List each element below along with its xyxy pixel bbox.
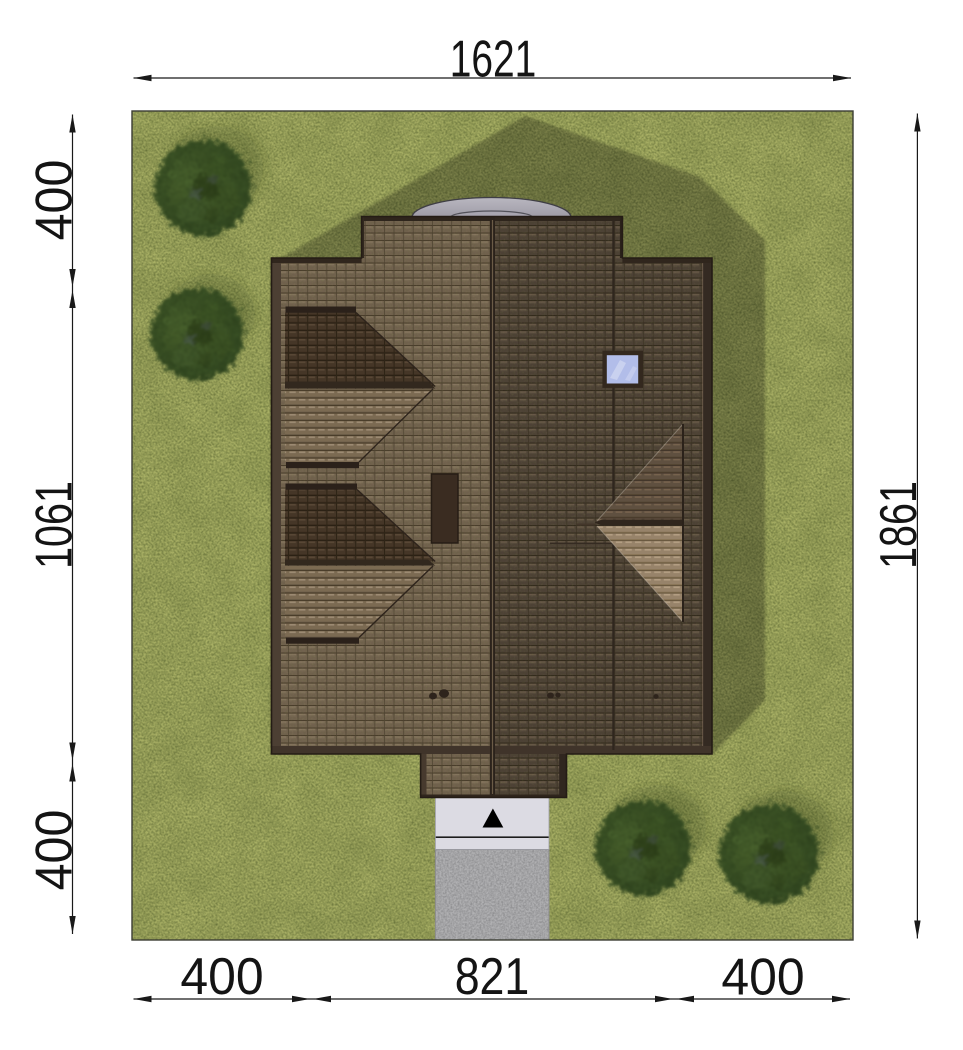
- svg-text:1621: 1621: [450, 29, 537, 88]
- svg-text:400: 400: [25, 810, 83, 891]
- svg-text:1061: 1061: [24, 481, 83, 569]
- svg-text:821: 821: [455, 948, 530, 1006]
- svg-text:400: 400: [721, 948, 804, 1006]
- svg-text:400: 400: [180, 947, 263, 1005]
- svg-text:400: 400: [25, 160, 83, 241]
- svg-text:1861: 1861: [869, 481, 928, 569]
